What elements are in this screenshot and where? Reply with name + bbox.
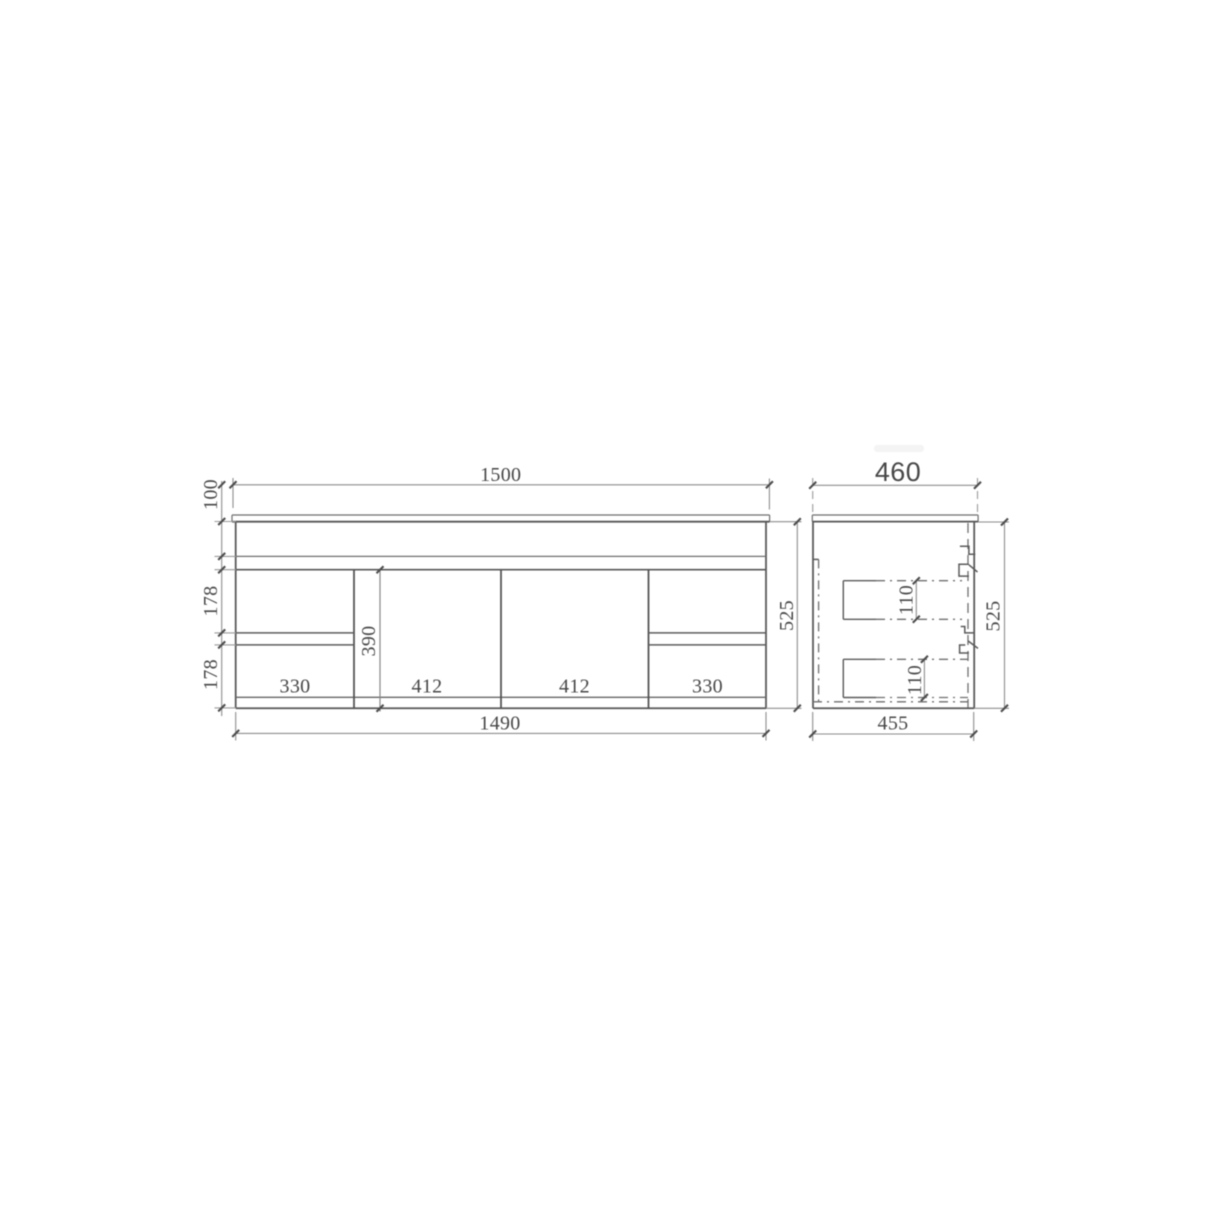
svg-text:110: 110 [904,665,926,695]
svg-text:460: 460 [875,457,921,487]
svg-text:330: 330 [280,676,311,698]
svg-text:110: 110 [896,585,918,615]
svg-text:412: 412 [559,676,590,698]
svg-text:1490: 1490 [479,712,520,734]
svg-text:330: 330 [692,676,723,698]
svg-text:390: 390 [358,626,380,657]
svg-text:178: 178 [200,659,222,690]
svg-text:178: 178 [200,586,222,617]
svg-text:525: 525 [983,601,1005,632]
svg-text:100: 100 [200,479,222,510]
svg-text:412: 412 [412,676,443,698]
svg-text:525: 525 [776,600,798,631]
svg-text:1500: 1500 [480,464,521,486]
svg-text:455: 455 [878,713,909,735]
